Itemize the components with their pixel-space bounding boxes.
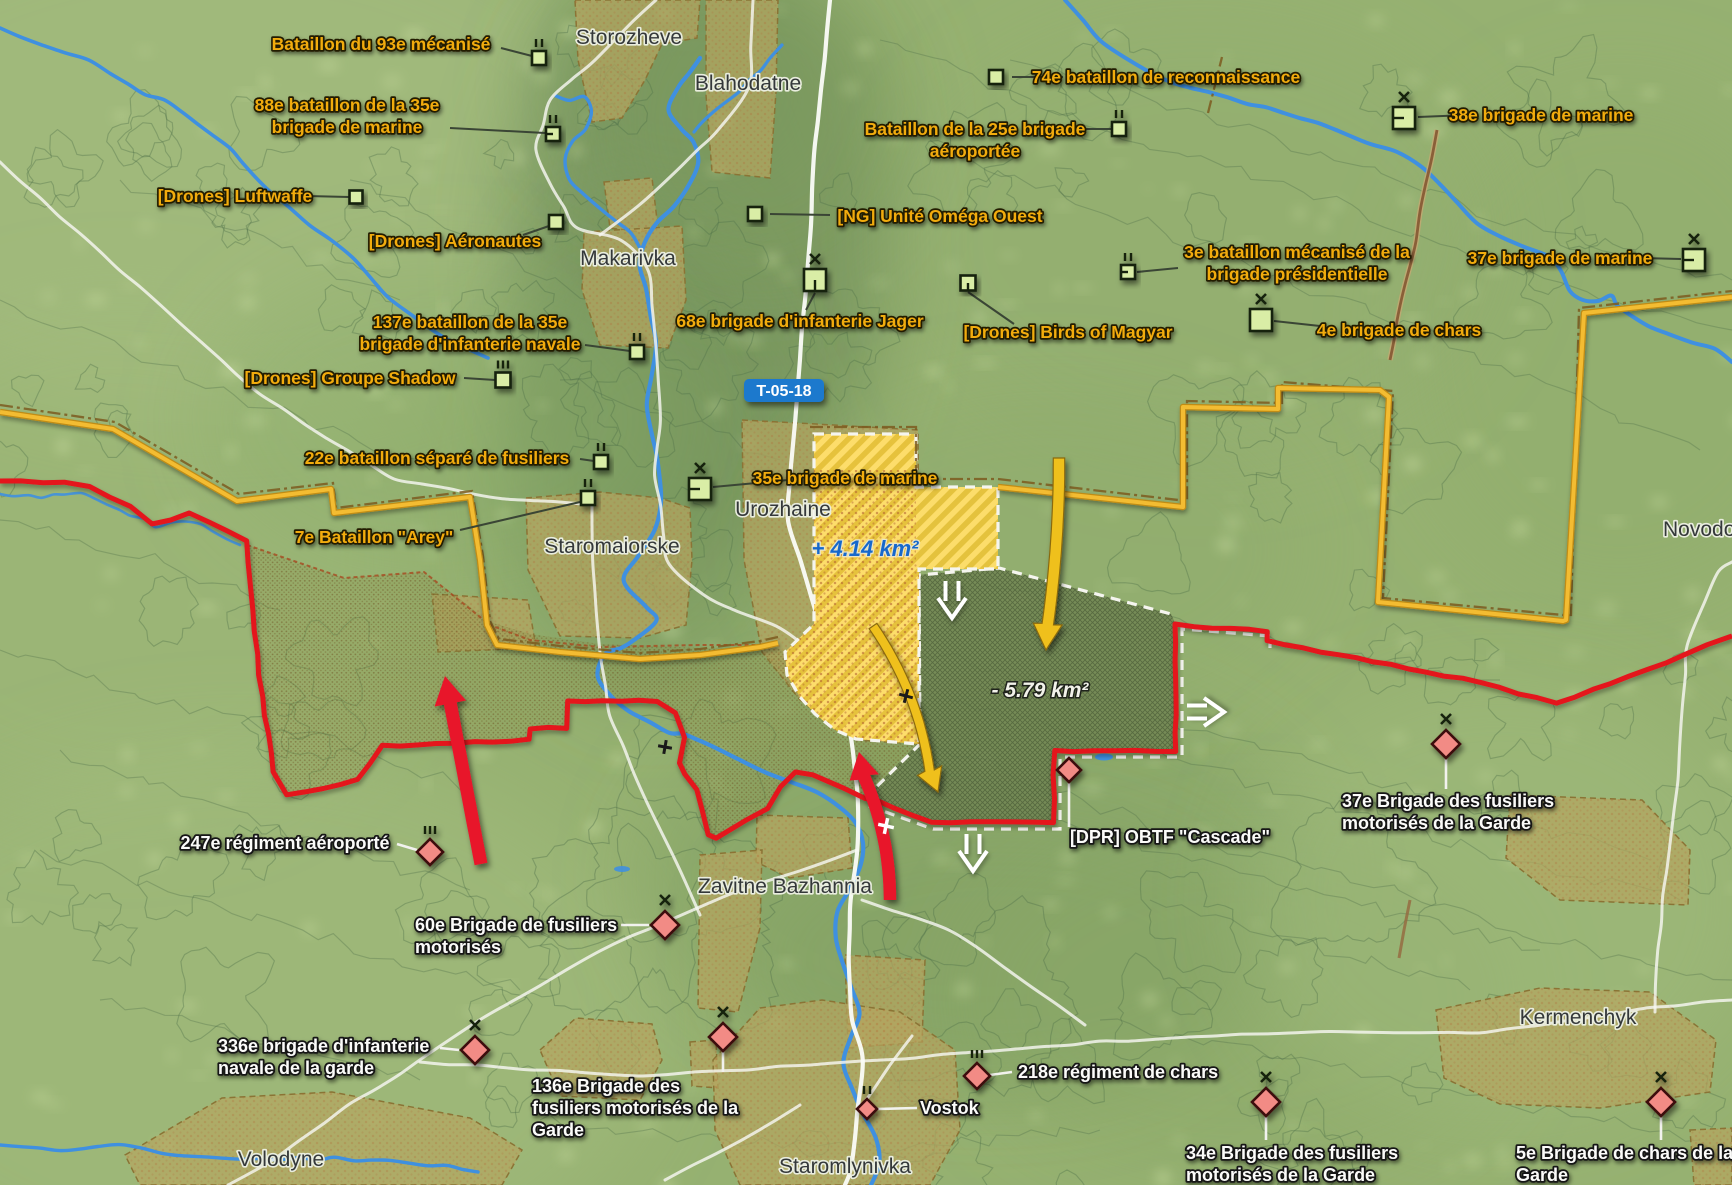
svg-text:247e régiment aéroporté: 247e régiment aéroporté	[180, 833, 389, 853]
svg-text:[NG] Unité Oméga Ouest: [NG] Unité Oméga Ouest	[837, 206, 1042, 226]
svg-text:Kermenchyk: Kermenchyk	[1520, 1006, 1637, 1029]
svg-text:Vostok: Vostok	[920, 1098, 980, 1118]
svg-text:- 5.79 km²: - 5.79 km²	[992, 679, 1090, 702]
svg-text:+ 4.14 km²: + 4.14 km²	[811, 536, 919, 561]
svg-text:37e brigade de marine: 37e brigade de marine	[1468, 248, 1653, 268]
svg-text:[Drones] Birds of Magyar: [Drones] Birds of Magyar	[963, 322, 1172, 342]
svg-text:22e bataillon séparé de fusili: 22e bataillon séparé de fusiliers	[305, 448, 570, 468]
svg-text:35e brigade de marine: 35e brigade de marine	[753, 468, 938, 488]
svg-text:[Drones] Aéronautes: [Drones] Aéronautes	[369, 231, 542, 251]
svg-text:[Drones] Luftwaffe: [Drones] Luftwaffe	[158, 186, 313, 206]
svg-text:74e bataillon de reconnaissanc: 74e bataillon de reconnaissance	[1032, 67, 1301, 87]
svg-text:Blahodatne: Blahodatne	[695, 72, 801, 95]
svg-text:Urozhaine: Urozhaine	[735, 498, 831, 521]
svg-text:Zavitne Bazhannia: Zavitne Bazhannia	[698, 875, 872, 898]
svg-text:Staromaiorske: Staromaiorske	[544, 535, 679, 558]
svg-text:4e brigade de chars: 4e brigade de chars	[1317, 320, 1482, 340]
svg-text:Storozheve: Storozheve	[576, 26, 682, 49]
svg-text:T-05-18: T-05-18	[756, 383, 811, 400]
svg-text:38e brigade de marine: 38e brigade de marine	[1449, 105, 1634, 125]
svg-text:7e Bataillon "Arey": 7e Bataillon "Arey"	[295, 527, 454, 547]
svg-text:Staromlynivka: Staromlynivka	[779, 1155, 911, 1178]
svg-text:Novodonetske: Novodonetske	[1663, 518, 1732, 541]
svg-text:68e brigade d'infanterie Jager: 68e brigade d'infanterie Jager	[676, 311, 923, 331]
svg-text:Volodyne: Volodyne	[238, 1148, 324, 1171]
svg-text:218e régiment de chars: 218e régiment de chars	[1018, 1062, 1218, 1082]
svg-text:Bataillon du 93e mécanisé: Bataillon du 93e mécanisé	[272, 34, 491, 54]
svg-text:Makarivka: Makarivka	[580, 247, 676, 270]
svg-text:[DPR] OBTF "Cascade": [DPR] OBTF "Cascade"	[1070, 827, 1270, 847]
svg-text:[Drones] Groupe Shadow: [Drones] Groupe Shadow	[245, 368, 456, 388]
